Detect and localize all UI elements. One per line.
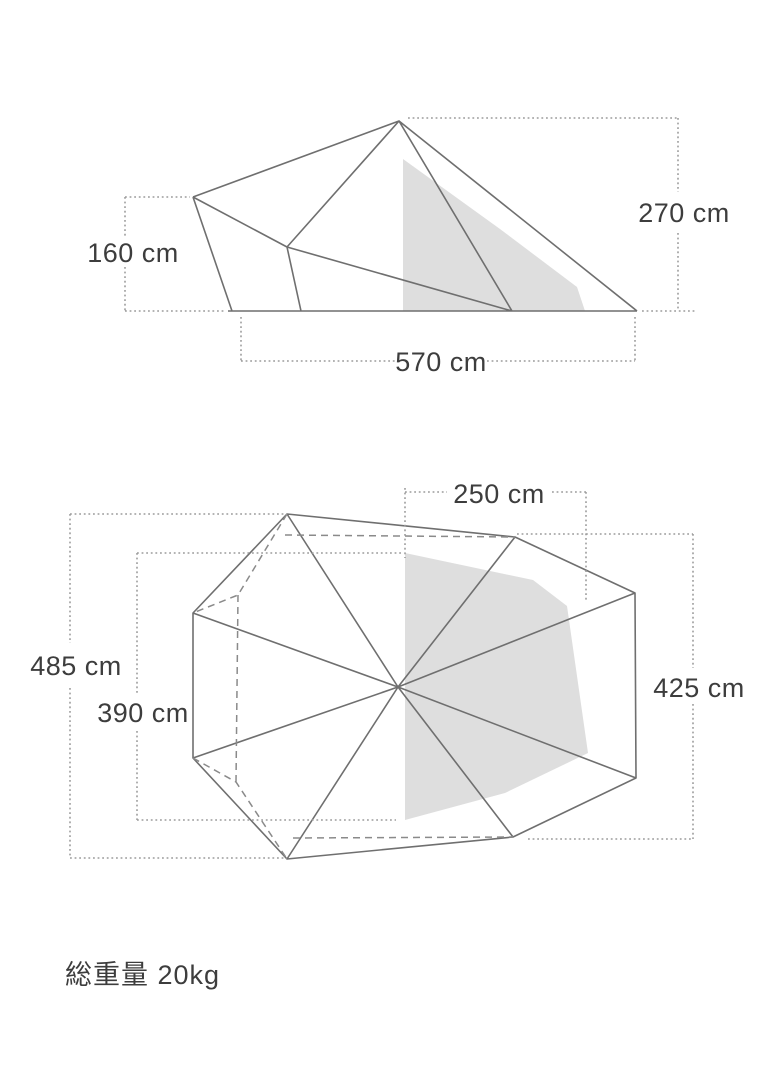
- label-outer-length: 485 cm: [30, 651, 122, 681]
- label-side-height: 160 cm: [87, 238, 179, 268]
- label-peak-height: 270 cm: [638, 198, 730, 228]
- dim-line-outer-length: [70, 514, 287, 858]
- label-width: 425 cm: [653, 673, 745, 703]
- top-view-dimension-lines: [70, 488, 693, 858]
- top-view-inner-tent-shade: [405, 553, 588, 820]
- label-inner-half-width: 250 cm: [453, 479, 545, 509]
- total-weight-label: 総重量 20kg: [65, 960, 220, 990]
- top-view-diagram: 250 cm 485 cm 390 cm 425 cm: [30, 479, 745, 859]
- dim-line-inner-length: [137, 553, 403, 820]
- side-view-diagram: 270 cm 160 cm 570 cm: [87, 118, 730, 377]
- tent-spec-sheet: 270 cm 160 cm 570 cm 250 cm 485 cm 390 c…: [0, 0, 771, 1080]
- label-base-width: 570 cm: [395, 347, 487, 377]
- tent-spec-diagram: 270 cm 160 cm 570 cm 250 cm 485 cm 390 c…: [0, 0, 771, 1080]
- label-inner-length: 390 cm: [97, 698, 189, 728]
